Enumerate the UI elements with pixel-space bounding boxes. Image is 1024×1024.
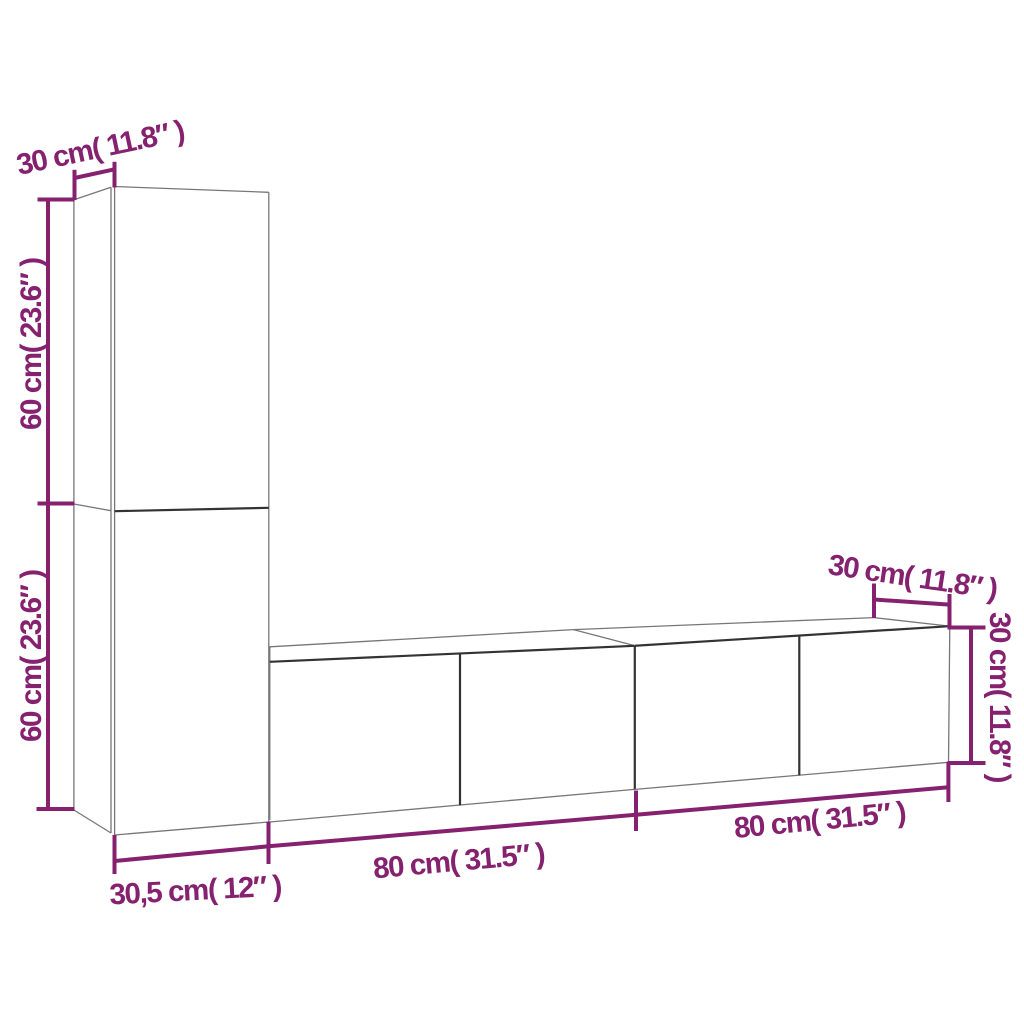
svg-text:60 cm( 23.6″ ): 60 cm( 23.6″ ) [15,570,48,742]
svg-text:30 cm( 11.8″ ): 30 cm( 11.8″ ) [983,612,1016,783]
svg-text:60 cm( 23.6″ ): 60 cm( 23.6″ ) [15,258,48,430]
